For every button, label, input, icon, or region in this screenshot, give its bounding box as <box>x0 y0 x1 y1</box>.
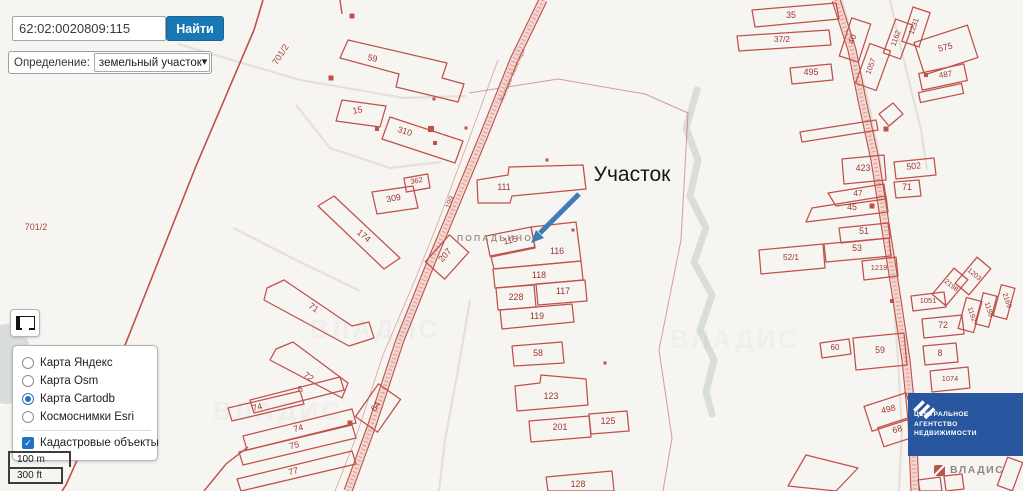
parcel-123[interactable]: 123 <box>515 375 588 411</box>
parcel-502[interactable]: 502 <box>894 158 936 179</box>
parcel-201[interactable]: 201 <box>529 416 591 442</box>
overlay-label: Кадастровые объекты <box>40 437 159 449</box>
object-type-value: земельный участок <box>99 57 202 69</box>
layers-panel: Карта ЯндексКарта OsmКарта CartodbКосмос… <box>12 345 158 461</box>
building-dot <box>329 76 334 81</box>
search-button[interactable]: Найти <box>166 16 224 41</box>
svg-text:201: 201 <box>553 422 568 432</box>
svg-text:502: 502 <box>906 160 922 171</box>
cadastral-map-app: 5915310309362174717267474757764207111115… <box>0 0 1023 491</box>
svg-text:117: 117 <box>556 286 570 296</box>
layer-option-label: Карта Osm <box>40 375 98 387</box>
parcel-125[interactable]: 125 <box>589 411 629 434</box>
building-dot <box>884 127 889 132</box>
parcel-unlabeled[interactable] <box>944 474 964 491</box>
building-dot <box>890 299 894 303</box>
svg-text:59: 59 <box>875 345 885 355</box>
building-dot <box>572 229 575 232</box>
building-dot <box>924 73 928 77</box>
svg-text:487: 487 <box>938 69 953 80</box>
svg-text:128: 128 <box>571 479 586 489</box>
svg-text:701/2: 701/2 <box>25 222 48 232</box>
svg-text:118: 118 <box>532 270 546 280</box>
layer-option-0[interactable]: Карта Яндекс <box>22 355 151 371</box>
search-input[interactable] <box>12 16 166 41</box>
parcel-unlabeled[interactable] <box>788 455 858 491</box>
parcel-111[interactable]: 111 <box>477 165 586 203</box>
parcel-309[interactable]: 309 <box>372 186 418 214</box>
chevron-down-icon: ▾ <box>202 57 208 68</box>
parcel-77[interactable]: 77 <box>237 451 356 491</box>
svg-text:53: 53 <box>852 243 862 253</box>
parcel-59[interactable]: 59 <box>340 40 464 102</box>
building-dot <box>465 127 468 130</box>
parcel-72[interactable]: 72 <box>270 342 348 398</box>
parcel-60[interactable]: 60 <box>820 339 851 358</box>
svg-text:58: 58 <box>533 348 543 358</box>
parcel-1074[interactable]: 1074 <box>930 367 970 392</box>
svg-text:71: 71 <box>902 182 912 192</box>
svg-text:362: 362 <box>410 175 424 186</box>
svg-text:498: 498 <box>880 402 897 415</box>
svg-text:309: 309 <box>385 192 401 204</box>
layer-option-1[interactable]: Карта Osm <box>22 373 151 389</box>
layer-option-2[interactable]: Карта Cartodb <box>22 391 151 407</box>
layer-option-label: Космоснимки Esri <box>40 411 134 423</box>
svg-text:72: 72 <box>938 320 948 330</box>
svg-text:111: 111 <box>497 182 510 192</box>
measure-area-button[interactable] <box>10 309 40 337</box>
svg-text:1057: 1057 <box>864 57 878 76</box>
svg-text:ПОПАДЬИНО: ПОПАДЬИНО <box>457 233 533 243</box>
svg-text:40: 40 <box>846 33 859 45</box>
parcel-117[interactable]: 117 <box>536 280 587 305</box>
svg-text:59: 59 <box>367 52 379 64</box>
svg-text:ВЛАДИС: ВЛАДИС <box>670 324 800 354</box>
svg-text:72: 72 <box>302 370 316 384</box>
scale-metric: 100 m <box>8 451 71 467</box>
radio-selected-icon[interactable] <box>22 393 34 405</box>
building-dot <box>604 362 607 365</box>
radio-icon[interactable] <box>22 411 34 423</box>
svg-text:125: 125 <box>601 416 616 426</box>
parcel-228[interactable]: 228 <box>496 285 536 310</box>
svg-text:77: 77 <box>287 465 299 477</box>
checkbox-checked-icon[interactable]: ✓ <box>22 437 34 449</box>
svg-text:1203: 1203 <box>966 267 983 282</box>
scale-imperial: 300 ft <box>8 467 63 484</box>
parcel-72[interactable]: 72 <box>922 315 964 338</box>
annotation-arrow-line <box>540 194 579 233</box>
parcel-unlabeled[interactable] <box>918 477 942 491</box>
definition-control: Определение: земельный участок ▾ <box>8 51 212 74</box>
svg-text:ВЛАДИС: ВЛАДИС <box>310 314 440 344</box>
building-dot <box>375 127 379 131</box>
svg-text:701/2: 701/2 <box>270 42 291 66</box>
parcel-58[interactable]: 58 <box>512 342 564 366</box>
building-dot <box>350 14 355 19</box>
svg-text:60: 60 <box>831 343 840 352</box>
svg-text:45: 45 <box>847 202 857 212</box>
svg-text:47: 47 <box>854 189 863 198</box>
svg-text:15: 15 <box>352 104 363 116</box>
parcel-119[interactable]: 119 <box>500 304 574 329</box>
building-dot <box>348 421 353 426</box>
vladis-label: ВЛАДИС <box>950 464 1004 476</box>
parcel-310[interactable]: 310 <box>382 117 463 163</box>
annotation-label: Участок <box>594 163 672 186</box>
parcel-362[interactable]: 362 <box>404 174 430 192</box>
svg-text:423: 423 <box>856 163 871 173</box>
agency-logo: ЦЕНТРАЛЬНОЕ АГЕНТСТВО НЕДВИЖИМОСТИ <box>908 393 1023 456</box>
parcel-495[interactable]: 495 <box>790 64 833 84</box>
target-parcel-annotation: Участок <box>531 163 671 243</box>
parcel-unlabeled[interactable] <box>879 103 903 126</box>
building-dot <box>433 98 436 101</box>
measure-area-icon <box>16 316 35 330</box>
parcel-15[interactable]: 15 <box>336 100 386 127</box>
building-dot <box>428 126 434 132</box>
svg-text:123: 123 <box>544 391 559 401</box>
building-dot <box>546 159 549 162</box>
scale-bar: 100 m 300 ft <box>8 451 71 484</box>
building-dot <box>433 141 437 145</box>
radio-icon[interactable] <box>22 357 34 369</box>
parcel-1231[interactable]: 1231 <box>902 7 930 47</box>
parcel-35[interactable]: 35 <box>752 3 839 27</box>
parcel-1198[interactable]: 1198 <box>975 293 997 328</box>
agency-logo-icon <box>908 393 938 423</box>
svg-text:310: 310 <box>396 124 413 138</box>
svg-text:1219: 1219 <box>871 263 887 272</box>
svg-text:75: 75 <box>288 439 300 451</box>
radio-icon[interactable] <box>22 375 34 387</box>
object-type-select[interactable]: земельный участок ▾ <box>94 53 210 72</box>
layer-option-label: Карта Cartodb <box>40 393 115 405</box>
svg-text:575: 575 <box>937 40 954 53</box>
svg-text:119: 119 <box>530 311 544 321</box>
parcel-8[interactable]: 8 <box>923 343 958 365</box>
svg-text:1198: 1198 <box>983 301 994 318</box>
parcel-37/2[interactable]: 37/2 <box>737 30 831 51</box>
svg-text:52/1: 52/1 <box>783 253 799 262</box>
layers-list: Карта ЯндексКарта OsmКарта CartodbКосмос… <box>22 355 151 425</box>
definition-label: Определение: <box>14 57 90 69</box>
parcel-52/1[interactable]: 52/1 <box>759 244 825 274</box>
svg-text:1051: 1051 <box>920 296 936 305</box>
parcel-2169[interactable]: 2169 <box>993 285 1015 320</box>
svg-text:51: 51 <box>859 226 869 236</box>
layer-option-3[interactable]: Космоснимки Esri <box>22 409 151 425</box>
vladis-watermark: ВЛАДИС <box>934 464 1004 476</box>
svg-text:495: 495 <box>804 67 819 77</box>
building-dot <box>870 204 875 209</box>
svg-text:8: 8 <box>938 348 943 358</box>
parcel-128[interactable]: 128 <box>546 471 614 491</box>
parcel-64[interactable]: 64 <box>355 384 400 432</box>
vladis-logo-icon <box>934 465 945 476</box>
parcel-71[interactable]: 71 <box>894 180 921 198</box>
layers-divider <box>22 430 151 431</box>
svg-text:228: 228 <box>509 292 524 302</box>
svg-text:1074: 1074 <box>942 374 958 383</box>
layer-option-label: Карта Яндекс <box>40 357 113 369</box>
svg-text:35: 35 <box>786 10 796 20</box>
svg-text:37/2: 37/2 <box>774 35 790 44</box>
overlay-toggle-cadastral-objects[interactable]: ✓ Кадастровые объекты <box>22 435 151 451</box>
svg-text:116: 116 <box>550 246 564 256</box>
parcel-174[interactable]: 174 <box>318 196 400 269</box>
svg-text:2169: 2169 <box>1001 292 1013 309</box>
svg-text:ВЛАДИС: ВЛАДИС <box>213 396 343 426</box>
